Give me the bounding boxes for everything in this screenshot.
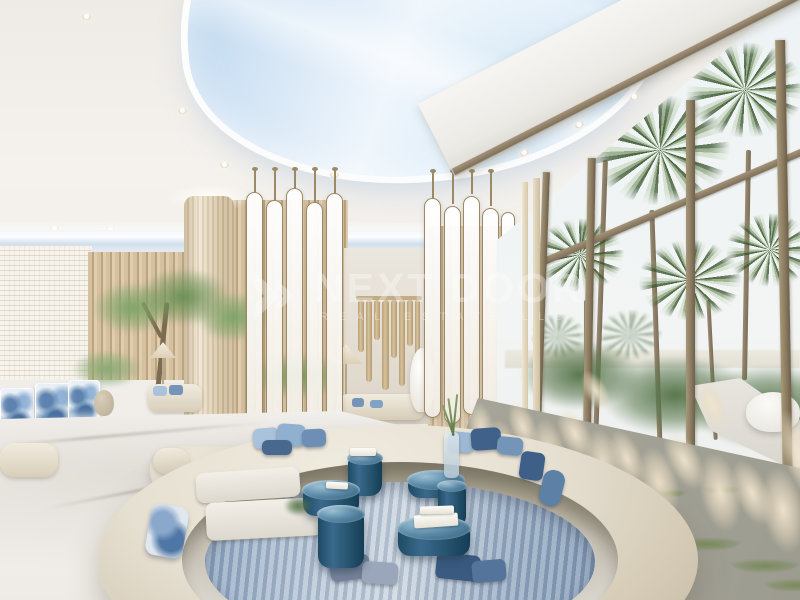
screen-rod [314, 170, 316, 204]
window-jamb [533, 178, 540, 446]
blue-accent [370, 400, 383, 408]
screen-rod [471, 172, 473, 194]
spotlight-icon [82, 14, 91, 20]
spotlight-icon [220, 162, 229, 168]
books [420, 505, 454, 514]
blue-accent [352, 398, 364, 407]
glass-vase [444, 432, 459, 478]
screen-rod [254, 170, 256, 194]
blue-side-table [398, 528, 470, 556]
art-tube [382, 300, 389, 390]
art-tube [391, 300, 397, 358]
screen-rod [274, 170, 276, 202]
screen-rod [452, 172, 454, 204]
sofa-pillow [471, 559, 507, 584]
arch-screen [286, 188, 303, 443]
bench [0, 443, 58, 477]
rug-plant [284, 496, 312, 516]
sofa-pillow [496, 436, 524, 457]
arch-screen [246, 192, 263, 446]
art-tube [366, 300, 372, 382]
arch-screen [482, 208, 499, 426]
screen-rod [294, 170, 296, 190]
art-tube [399, 300, 405, 386]
screen-rod [490, 172, 492, 206]
arch-screen [444, 206, 461, 424]
books [326, 481, 348, 489]
sofa-pillow [361, 561, 398, 585]
art-hanging-bar [356, 296, 422, 300]
sofa-pillow [518, 450, 546, 481]
screen-rod [432, 172, 434, 198]
sofa-pillow [262, 440, 292, 455]
blue-side-table [318, 514, 364, 568]
daybed-pillow [153, 386, 167, 396]
spotlight-icon [178, 108, 187, 114]
arch-screen [326, 193, 343, 447]
books [350, 448, 376, 456]
arch-screen [424, 198, 441, 418]
art-tube [374, 300, 380, 340]
sofa-pillow [302, 428, 327, 447]
art-tube [407, 300, 413, 346]
lounge-render: NEXT DOOR REAL ESTATE LLC [0, 0, 800, 600]
arch-screen [463, 196, 480, 415]
art-tube [358, 300, 364, 352]
screen-rod [334, 170, 336, 195]
daybed-pillow [169, 385, 183, 395]
stone-pot [94, 390, 114, 416]
